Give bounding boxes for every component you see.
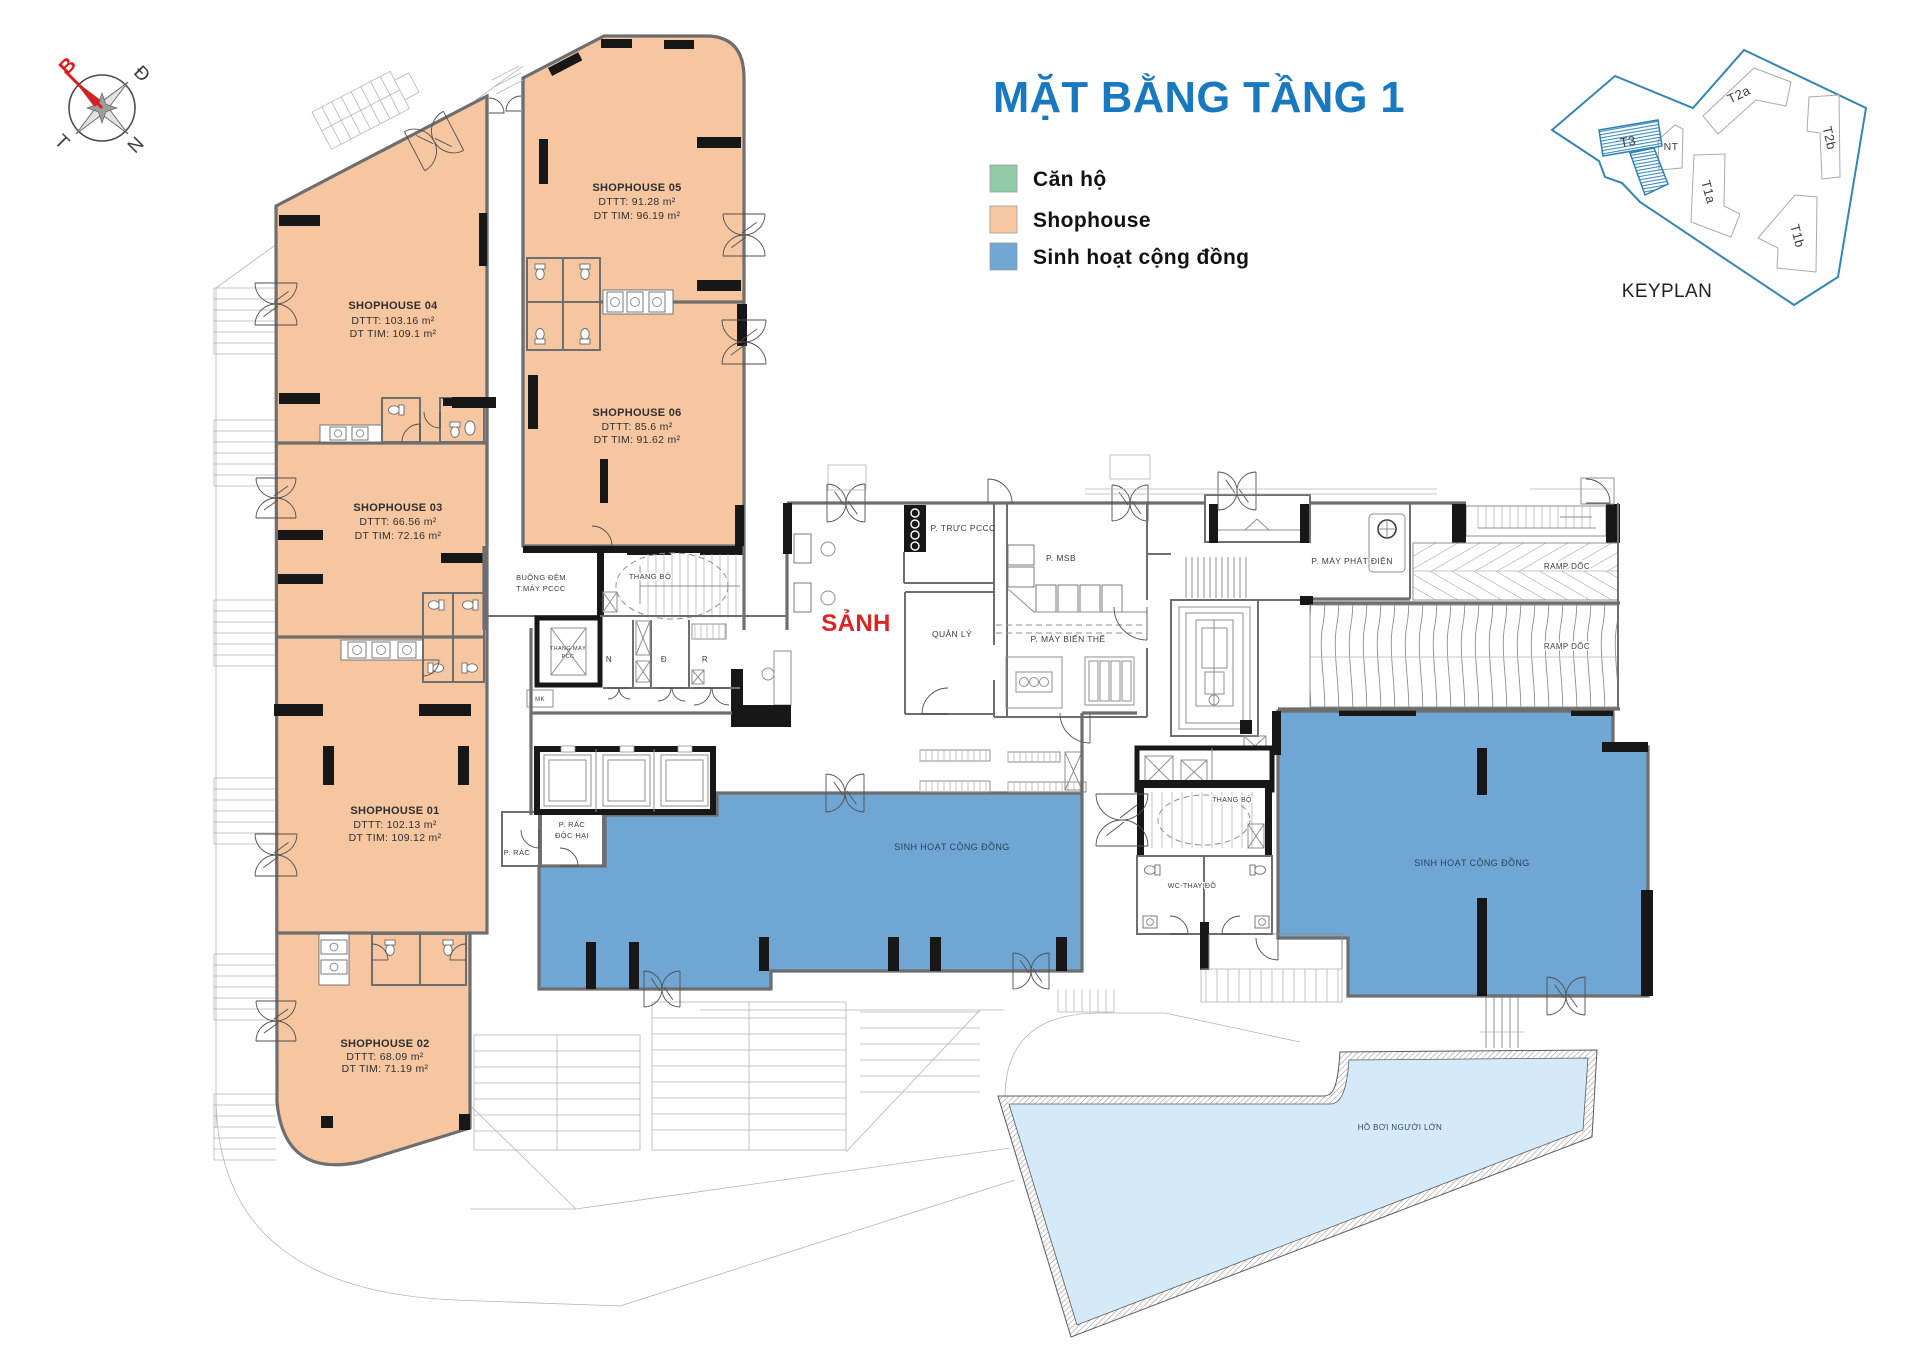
- svg-text:R: R: [702, 655, 708, 664]
- svg-text:Sinh hoạt cộng đồng: Sinh hoạt cộng đồng: [1033, 246, 1249, 269]
- svg-text:P. RÁC: P. RÁC: [504, 848, 531, 857]
- svg-text:SHOPHOUSE 01: SHOPHOUSE 01: [350, 805, 439, 817]
- svg-text:N: N: [606, 655, 612, 664]
- svg-text:SHOPHOUSE 03: SHOPHOUSE 03: [353, 502, 442, 514]
- svg-text:MK: MK: [535, 697, 545, 703]
- svg-text:HỒ BƠI NGƯỜI LỚN: HỒ BƠI NGƯỜI LỚN: [1358, 1122, 1443, 1132]
- svg-text:P. TRỰC PCCC: P. TRỰC PCCC: [930, 523, 995, 533]
- svg-text:SHOPHOUSE 05: SHOPHOUSE 05: [592, 182, 681, 194]
- svg-text:PCC: PCC: [562, 654, 575, 660]
- svg-text:Căn hộ: Căn hộ: [1033, 168, 1107, 191]
- svg-text:DT TIM: 109.12 m²: DT TIM: 109.12 m²: [349, 832, 442, 844]
- svg-text:DT TIM: 109.1 m²: DT TIM: 109.1 m²: [350, 328, 437, 340]
- svg-text:MẶT BẰNG TẦNG 1: MẶT BẰNG TẦNG 1: [993, 72, 1405, 122]
- svg-text:DT TIM: 91.62 m²: DT TIM: 91.62 m²: [594, 434, 681, 446]
- svg-text:THANG BỘ: THANG BỘ: [629, 572, 671, 581]
- svg-text:P. MÁY PHÁT ĐIỆN: P. MÁY PHÁT ĐIỆN: [1311, 556, 1393, 566]
- svg-text:SẢNH: SẢNH: [821, 608, 891, 637]
- svg-text:DTTT: 66.56 m²: DTTT: 66.56 m²: [359, 516, 436, 528]
- svg-text:RAMP DỐC: RAMP DỐC: [1544, 641, 1590, 651]
- svg-text:DTTT: 103.16 m²: DTTT: 103.16 m²: [351, 315, 434, 327]
- svg-text:DTTT: 102.13 m²: DTTT: 102.13 m²: [353, 819, 436, 831]
- svg-text:P. MÁY BIẾN THẾ: P. MÁY BIẾN THẾ: [1031, 634, 1106, 644]
- svg-text:DT TIM: 71.19 m²: DT TIM: 71.19 m²: [342, 1063, 429, 1075]
- svg-text:SINH HOẠT CỘNG ĐỒNG: SINH HOẠT CỘNG ĐỒNG: [894, 841, 1009, 852]
- svg-text:P. MSB: P. MSB: [1046, 553, 1076, 563]
- svg-text:DTTT: 68.09 m²: DTTT: 68.09 m²: [346, 1051, 423, 1063]
- svg-text:DTTT: 91.28 m²: DTTT: 91.28 m²: [598, 196, 675, 208]
- svg-text:T3: T3: [1619, 133, 1637, 151]
- svg-text:DT TIM: 72.16 m²: DT TIM: 72.16 m²: [355, 530, 442, 542]
- svg-text:SHOPHOUSE 06: SHOPHOUSE 06: [592, 407, 681, 419]
- svg-text:Shophouse: Shophouse: [1033, 209, 1151, 232]
- svg-text:NT: NT: [1664, 141, 1679, 153]
- svg-text:P. RÁC: P. RÁC: [559, 820, 586, 829]
- svg-text:RAMP DỐC: RAMP DỐC: [1544, 561, 1590, 571]
- svg-text:SHOPHOUSE 04: SHOPHOUSE 04: [348, 300, 438, 312]
- svg-text:BUỒNG ĐỆM: BUỒNG ĐỆM: [516, 572, 566, 582]
- svg-text:ĐỘC HẠI: ĐỘC HẠI: [555, 831, 589, 840]
- svg-text:Đ: Đ: [661, 655, 667, 664]
- svg-text:QUẢN LÝ: QUẢN LÝ: [932, 628, 972, 639]
- svg-text:KEYPLAN: KEYPLAN: [1622, 281, 1712, 302]
- svg-text:DT TIM: 96.19 m²: DT TIM: 96.19 m²: [594, 210, 681, 222]
- svg-text:THANG BỘ: THANG BỘ: [1212, 795, 1252, 804]
- svg-text:DTTT: 85.6 m²: DTTT: 85.6 m²: [602, 421, 673, 433]
- svg-text:T.MÁY PCCC: T.MÁY PCCC: [516, 584, 565, 593]
- svg-text:SHOPHOUSE 02: SHOPHOUSE 02: [340, 1038, 429, 1050]
- svg-text:SINH HOẠT CỘNG ĐỒNG: SINH HOẠT CỘNG ĐỒNG: [1414, 857, 1529, 868]
- svg-text:THANG MÁY: THANG MÁY: [550, 645, 586, 652]
